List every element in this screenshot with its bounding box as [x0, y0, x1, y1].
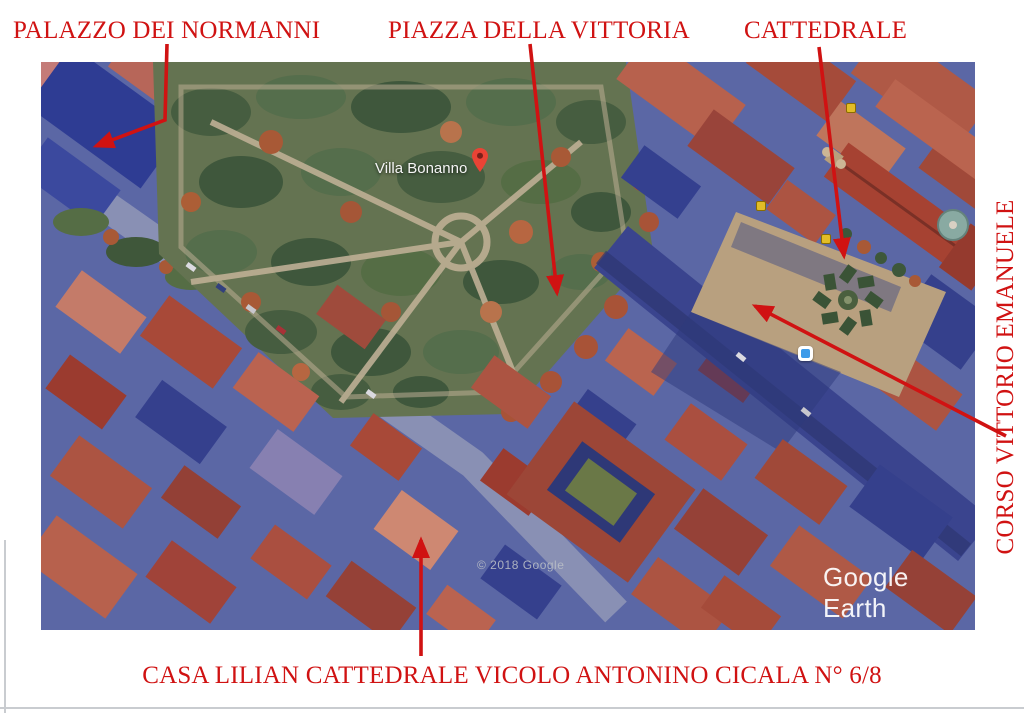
label-piazza-della-vittoria: PIAZZA DELLA VITTORIA [388, 17, 690, 45]
poi-marker-icon [756, 201, 766, 211]
aerial-illustration [41, 62, 975, 630]
color-cast-overlay [41, 62, 975, 630]
page-edge-line [4, 540, 6, 713]
poi-marker-icon [846, 103, 856, 113]
location-pin-icon [472, 148, 488, 172]
page-edge-line [0, 707, 1024, 709]
copyright-watermark: © 2018 Google [477, 558, 564, 572]
annotated-map-page: PALAZZO DEI NORMANNI PIAZZA DELLA VITTOR… [0, 0, 1024, 713]
poi-marker-icon [821, 234, 831, 244]
villa-bonanno-label: Villa Bonanno [375, 160, 467, 177]
label-palazzo-dei-normanni: PALAZZO DEI NORMANNI [13, 17, 320, 45]
google-earth-logo: Google Earth [823, 562, 975, 624]
satellite-map-image[interactable]: Villa Bonanno © 2018 Google Google Earth [41, 62, 975, 630]
label-cattedrale: CATTEDRALE [744, 17, 907, 45]
label-casa-lilian-address: CASA LILIAN CATTEDRALE VICOLO ANTONINO C… [142, 662, 882, 690]
camera-icon [798, 346, 813, 361]
label-corso-vittorio-emanuele: CORSO VITTORIO EMANUELE [992, 199, 1020, 554]
